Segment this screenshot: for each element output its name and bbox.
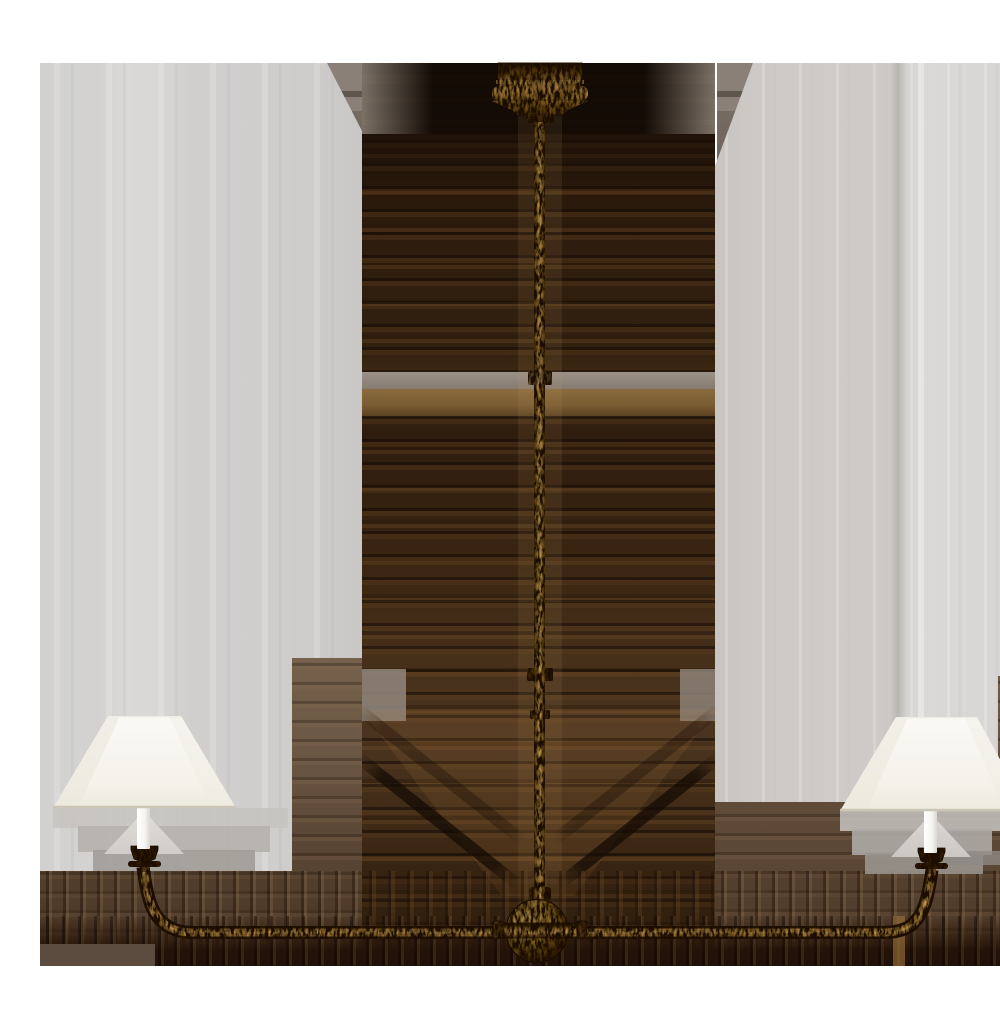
left-arm: [143, 867, 505, 933]
right-candle: [924, 809, 937, 853]
ball-nub-left: [493, 921, 503, 938]
metal-parts: [128, 63, 948, 963]
stem-joint: [529, 887, 551, 900]
product-photo-chandelier: [40, 16, 1000, 1016]
right-shade: [840, 717, 1000, 811]
stem-ring: [530, 710, 550, 719]
center-ball: [493, 900, 587, 963]
left-candle: [137, 806, 150, 849]
ceiling-canopy: [492, 63, 588, 123]
stem-collar: [527, 668, 553, 681]
center-stem: [527, 122, 553, 902]
left-socket: [128, 846, 161, 872]
right-arm: [571, 870, 932, 933]
ball-nub-right: [577, 921, 587, 938]
chandelier-fixture: [40, 16, 1000, 1016]
left-shade: [53, 716, 236, 808]
